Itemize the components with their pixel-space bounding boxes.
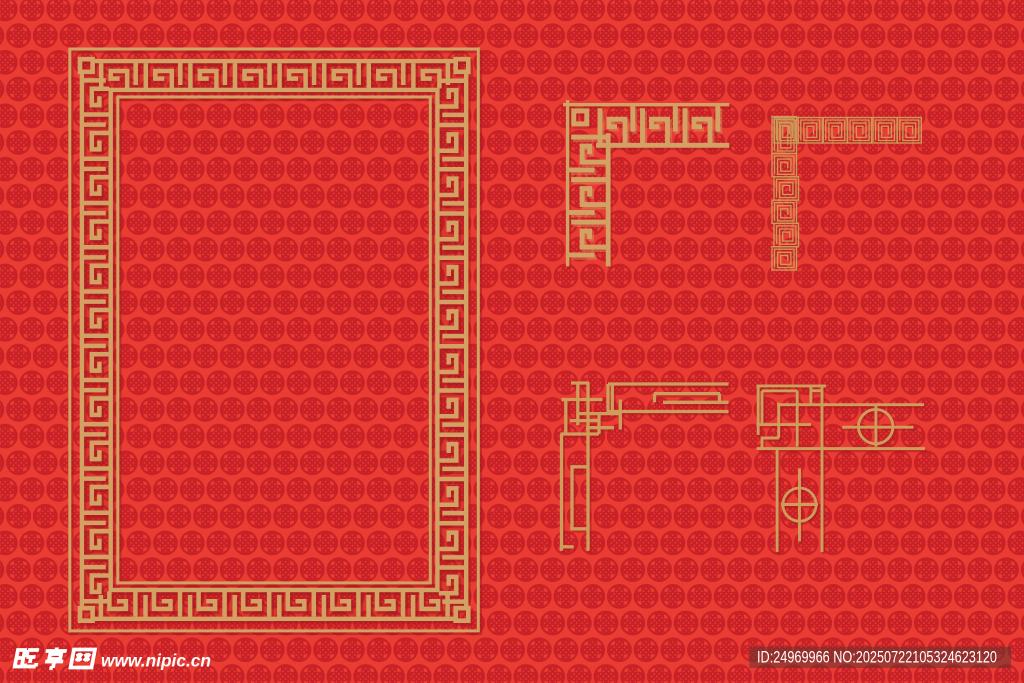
svg-text:www.nipic.cn: www.nipic.cn (101, 651, 211, 671)
svg-text:ID:24969966 NO:202507221053246: ID:24969966 NO:20250722105324623120 (757, 649, 997, 667)
